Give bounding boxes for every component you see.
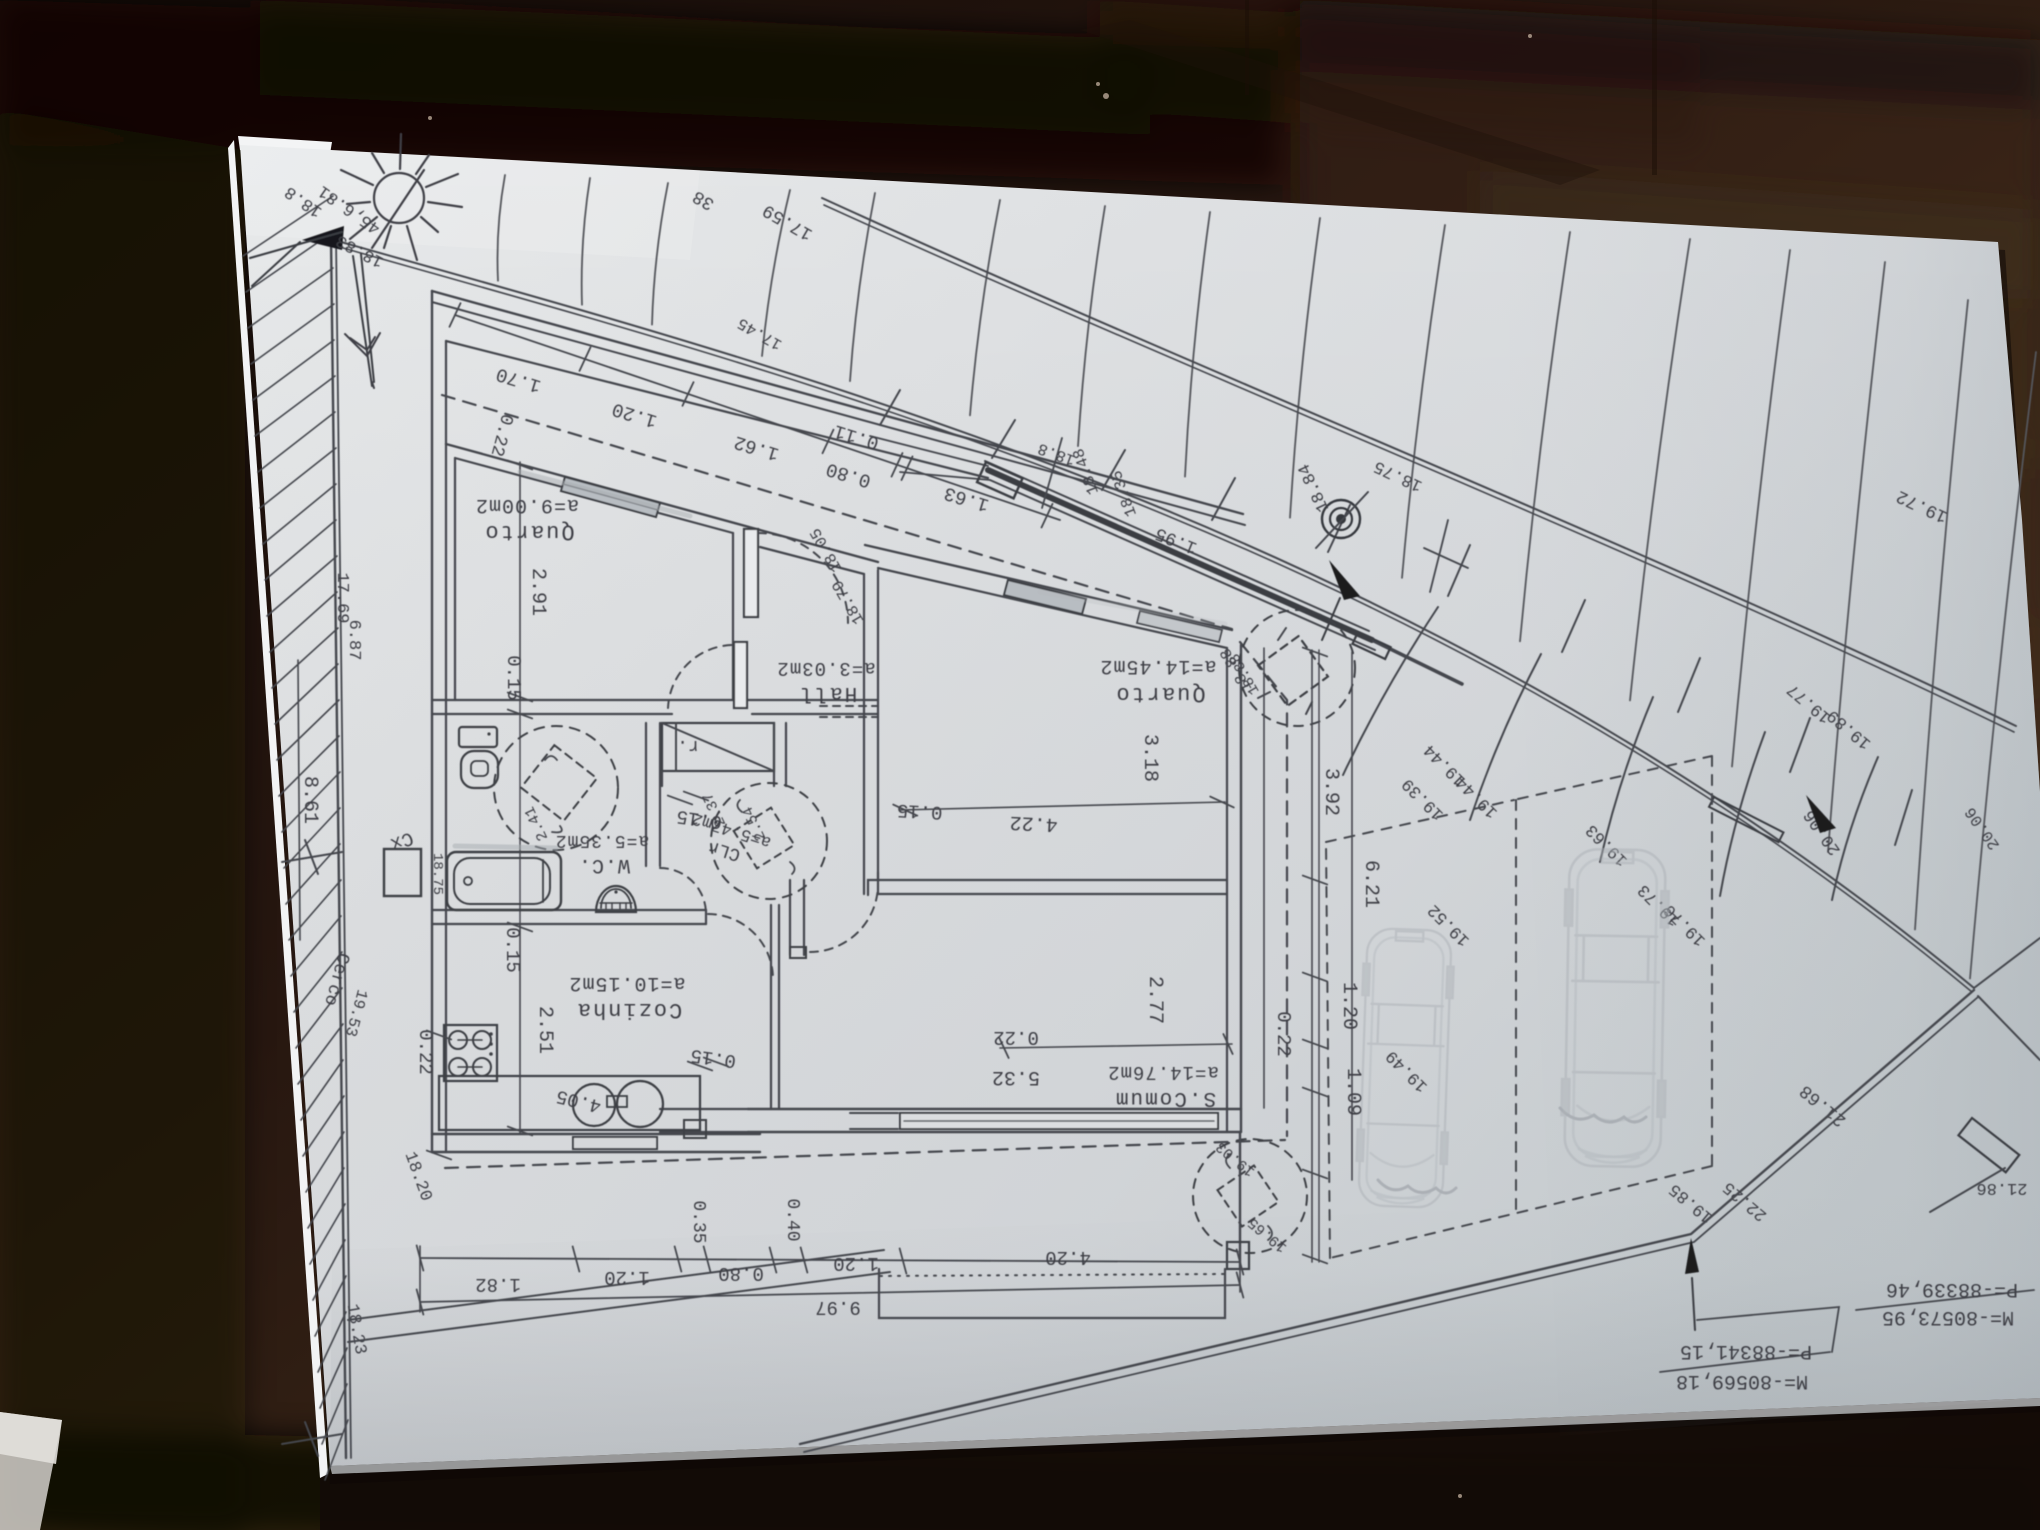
svg-text:8.61: 8.61 — [298, 776, 321, 824]
svg-text:18.75: 18.75 — [429, 853, 445, 895]
svg-text:0.22: 0.22 — [993, 1026, 1039, 1048]
svg-text:2.91: 2.91 — [526, 568, 549, 616]
svg-text:2.51: 2.51 — [533, 1006, 556, 1054]
svg-text:1.20: 1.20 — [1337, 982, 1360, 1030]
svg-text:0.22: 0.22 — [1272, 1011, 1294, 1057]
svg-text:0.40: 0.40 — [782, 1198, 802, 1241]
svg-text:0.80: 0.80 — [718, 1262, 764, 1284]
svg-text:2.77: 2.77 — [1143, 976, 1166, 1024]
svg-text:a=14.76m2: a=14.76m2 — [1107, 1061, 1219, 1083]
svg-text:3.92: 3.92 — [1319, 768, 1342, 816]
svg-text:M=-80573,95: M=-80573,95 — [1882, 1305, 2014, 1328]
svg-text:6.21: 6.21 — [1359, 860, 1382, 908]
svg-text:0.15: 0.15 — [501, 927, 523, 973]
svg-text:0.15: 0.15 — [896, 799, 943, 823]
svg-text:M=-80569,18: M=-80569,18 — [1676, 1369, 1808, 1392]
svg-text:3.18: 3.18 — [1138, 734, 1161, 782]
svg-text:W.C.: W.C. — [578, 853, 630, 876]
svg-text:a=10.15m2: a=10.15m2 — [568, 971, 685, 994]
svg-text:0.15: 0.15 — [502, 655, 524, 701]
svg-text:1.09: 1.09 — [1341, 1068, 1364, 1116]
svg-text:1.82: 1.82 — [475, 1273, 521, 1295]
svg-text:Quarto: Quarto — [1114, 681, 1205, 706]
svg-text:6.87: 6.87 — [344, 620, 363, 661]
svg-text:5.32: 5.32 — [992, 1065, 1040, 1088]
svg-text:Hall: Hall — [799, 681, 857, 704]
svg-text:P=-88339,46: P=-88339,46 — [1886, 1277, 2018, 1300]
svg-text:17.69: 17.69 — [332, 572, 351, 623]
svg-text:0.22: 0.22 — [414, 1029, 436, 1075]
svg-text:r.: r. — [677, 735, 699, 755]
svg-text:a=3.03m2: a=3.03m2 — [776, 657, 875, 679]
svg-text:Quarto: Quarto — [483, 519, 574, 544]
svg-text:a=9.00m2: a=9.00m2 — [475, 493, 579, 516]
svg-text:1.20: 1.20 — [833, 1252, 879, 1274]
svg-text:P=-88341,15: P=-88341,15 — [1680, 1339, 1812, 1362]
svg-text:0.35: 0.35 — [688, 1200, 708, 1243]
svg-text:a=5.35m2: a=5.35m2 — [555, 830, 649, 850]
svg-text:Cozinha: Cozinha — [576, 997, 682, 1022]
svg-text:1.20: 1.20 — [604, 1266, 650, 1288]
svg-text:9.97: 9.97 — [815, 1296, 861, 1318]
svg-text:4.22: 4.22 — [1009, 810, 1058, 835]
svg-text:S.Comum: S.Comum — [1114, 1086, 1216, 1109]
svg-text:4.20: 4.20 — [1045, 1246, 1091, 1268]
svg-text:a=14.45m2: a=14.45m2 — [1099, 654, 1216, 677]
